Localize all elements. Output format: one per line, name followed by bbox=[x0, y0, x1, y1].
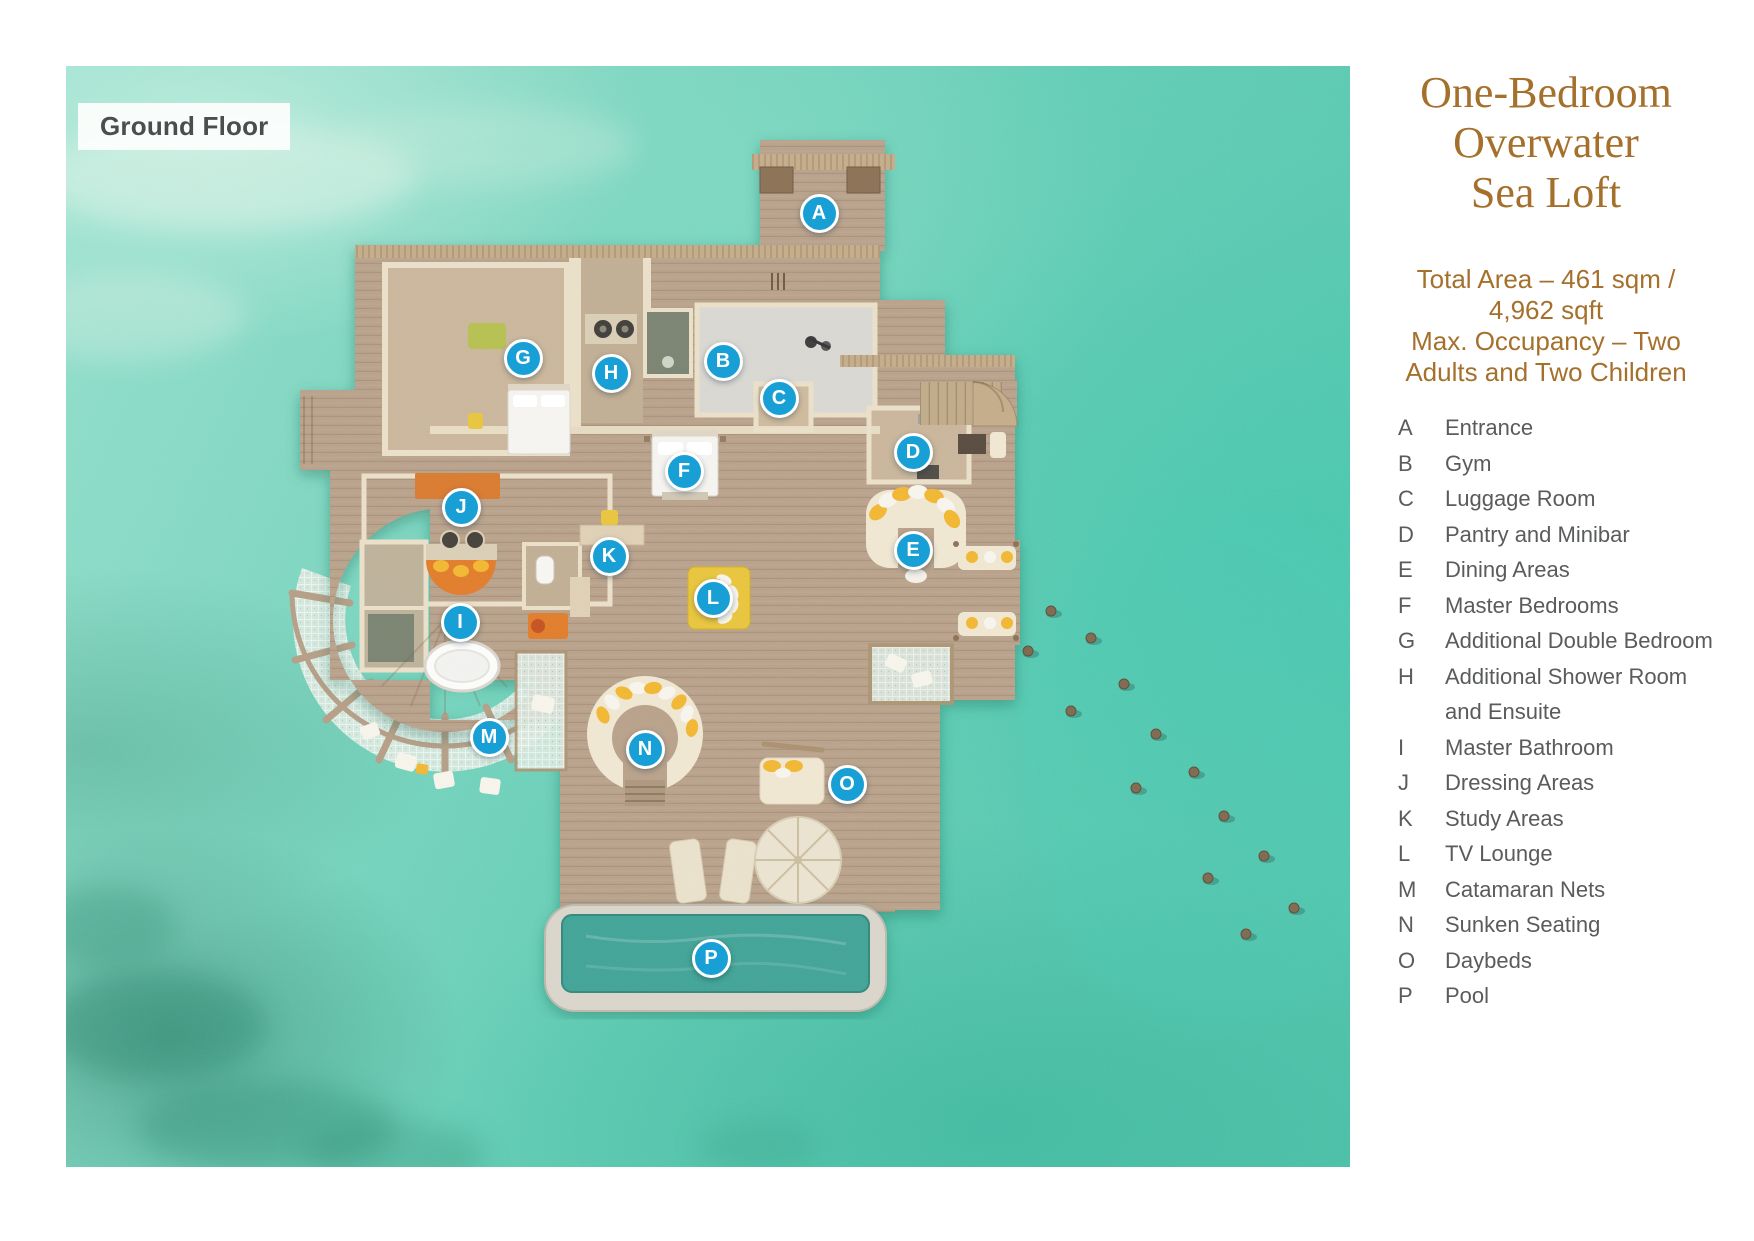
legend-label: Master Bedrooms bbox=[1445, 588, 1619, 624]
plan-marker-e: E bbox=[894, 531, 933, 570]
legend-letter: C bbox=[1398, 481, 1445, 517]
page-title: One-Bedroom Overwater Sea Loft bbox=[1350, 68, 1742, 218]
legend-letter: M bbox=[1398, 872, 1445, 908]
legend-row-h: HAdditional Shower Room and Ensuite bbox=[1398, 659, 1742, 730]
legend-label: Dressing Areas bbox=[1445, 765, 1594, 801]
legend-row-j: JDressing Areas bbox=[1398, 765, 1742, 801]
legend-row-o: ODaybeds bbox=[1398, 943, 1742, 979]
legend-label: Luggage Room bbox=[1445, 481, 1595, 517]
legend-letter: A bbox=[1398, 410, 1445, 446]
brochure-page: Ground Floor A B C D E F G H I J K L M N… bbox=[0, 0, 1754, 1241]
legend-row-d: DPantry and Minibar bbox=[1398, 517, 1742, 553]
legend-letter: L bbox=[1398, 836, 1445, 872]
plan-marker-a: A bbox=[800, 194, 839, 233]
legend-row-g: GAdditional Double Bedroom bbox=[1398, 623, 1742, 659]
legend: AEntrance BGym CLuggage Room DPantry and… bbox=[1350, 410, 1742, 1014]
legend-row-l: LTV Lounge bbox=[1398, 836, 1742, 872]
legend-label: Catamaran Nets bbox=[1445, 872, 1605, 908]
plan-marker-g: G bbox=[504, 339, 543, 378]
legend-letter: J bbox=[1398, 765, 1445, 801]
legend-row-e: EDining Areas bbox=[1398, 552, 1742, 588]
legend-label: Pantry and Minibar bbox=[1445, 517, 1630, 553]
plan-marker-j: J bbox=[442, 488, 481, 527]
legend-row-c: CLuggage Room bbox=[1398, 481, 1742, 517]
legend-letter: G bbox=[1398, 623, 1445, 659]
legend-row-k: KStudy Areas bbox=[1398, 801, 1742, 837]
legend-label: Master Bathroom bbox=[1445, 730, 1614, 766]
legend-letter: F bbox=[1398, 588, 1445, 624]
legend-letter: B bbox=[1398, 446, 1445, 482]
legend-letter: I bbox=[1398, 730, 1445, 766]
plan-marker-k: K bbox=[590, 537, 629, 576]
legend-label: Study Areas bbox=[1445, 801, 1564, 837]
info-panel: One-Bedroom Overwater Sea Loft Total Are… bbox=[1350, 0, 1742, 1014]
legend-label: TV Lounge bbox=[1445, 836, 1553, 872]
plan-marker-p: P bbox=[692, 939, 731, 978]
legend-row-m: MCatamaran Nets bbox=[1398, 872, 1742, 908]
legend-label: Daybeds bbox=[1445, 943, 1532, 979]
legend-label: Gym bbox=[1445, 446, 1491, 482]
legend-letter: O bbox=[1398, 943, 1445, 979]
plan-marker-o: O bbox=[828, 765, 867, 804]
legend-label: Pool bbox=[1445, 978, 1489, 1014]
plan-marker-i: I bbox=[441, 603, 480, 642]
legend-letter: D bbox=[1398, 517, 1445, 553]
legend-row-i: IMaster Bathroom bbox=[1398, 730, 1742, 766]
legend-label: Additional Shower Room and Ensuite bbox=[1445, 659, 1687, 730]
plan-marker-b: B bbox=[704, 342, 743, 381]
legend-row-n: NSunken Seating bbox=[1398, 907, 1742, 943]
legend-row-p: PPool bbox=[1398, 978, 1742, 1014]
ground-floor-label: Ground Floor bbox=[78, 103, 290, 150]
legend-label: Entrance bbox=[1445, 410, 1533, 446]
legend-letter: N bbox=[1398, 907, 1445, 943]
floor-plan-photo: Ground Floor A B C D E F G H I J K L M N… bbox=[66, 66, 1350, 1167]
legend-row-f: FMaster Bedrooms bbox=[1398, 588, 1742, 624]
legend-letter: H bbox=[1398, 659, 1445, 730]
legend-letter: P bbox=[1398, 978, 1445, 1014]
legend-row-a: AEntrance bbox=[1398, 410, 1742, 446]
plan-marker-n: N bbox=[626, 730, 665, 769]
area-occupancy-specs: Total Area – 461 sqm / 4,962 sqft Max. O… bbox=[1350, 264, 1742, 388]
plan-marker-d: D bbox=[894, 433, 933, 472]
plan-marker-l: L bbox=[694, 579, 733, 618]
legend-row-b: BGym bbox=[1398, 446, 1742, 482]
legend-label: Sunken Seating bbox=[1445, 907, 1600, 943]
legend-label: Additional Double Bedroom bbox=[1445, 623, 1713, 659]
legend-label: Dining Areas bbox=[1445, 552, 1570, 588]
plan-marker-h: H bbox=[592, 354, 631, 393]
legend-letter: K bbox=[1398, 801, 1445, 837]
plan-marker-m: M bbox=[470, 718, 509, 757]
plan-marker-c: C bbox=[760, 379, 799, 418]
legend-letter: E bbox=[1398, 552, 1445, 588]
plan-marker-f: F bbox=[665, 452, 704, 491]
